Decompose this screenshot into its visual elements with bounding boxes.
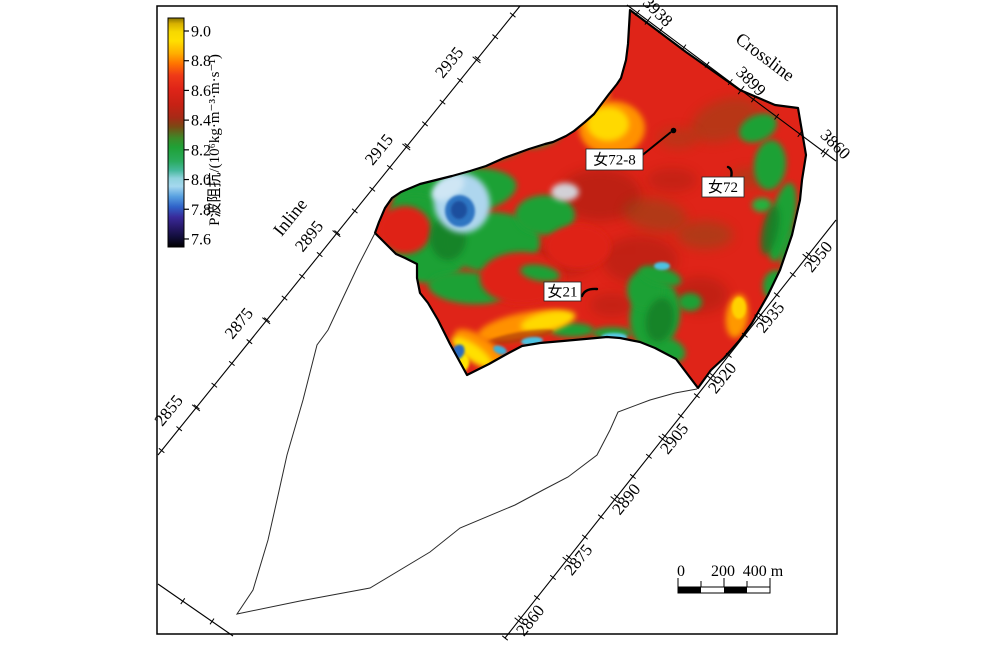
scale-bar-black-segment bbox=[724, 587, 747, 593]
impedance-blob bbox=[647, 168, 697, 192]
axis-tick bbox=[502, 636, 507, 640]
scale-bar-label: 200 bbox=[711, 563, 735, 580]
colorbar-tick-label: 9.0 bbox=[191, 24, 211, 41]
corner-axis bbox=[158, 584, 233, 636]
inline_left-tick-label: 2935 bbox=[431, 43, 467, 81]
well-label: 女72-8 bbox=[593, 151, 636, 169]
axis-tick bbox=[646, 454, 651, 458]
inline_right-tick-label: 2875 bbox=[560, 541, 596, 579]
impedance-blob bbox=[546, 225, 610, 269]
axis-tick bbox=[181, 598, 185, 604]
impedance-blob bbox=[551, 183, 579, 201]
inline_right-tick-label: 2905 bbox=[656, 419, 692, 457]
impedance-map-figure: 393838993860Crossline2855287528952915293… bbox=[0, 0, 1000, 646]
impedance-blob bbox=[451, 201, 467, 219]
axis-tick bbox=[550, 575, 555, 579]
axis-tick bbox=[210, 619, 214, 625]
crossline-tick-label: 3860 bbox=[817, 126, 854, 163]
impedance-blob bbox=[789, 379, 803, 391]
corner-axis-line bbox=[158, 584, 233, 636]
axis-tick bbox=[821, 149, 825, 155]
axis-tick bbox=[582, 535, 587, 539]
axis-tick bbox=[192, 405, 200, 411]
axis-tick bbox=[694, 394, 699, 398]
axis-tick bbox=[630, 474, 635, 478]
colorbar-gradient-bar bbox=[168, 18, 184, 247]
inline_left-tick-label: 2855 bbox=[151, 391, 187, 429]
scale-bar-label: 400 m bbox=[743, 563, 784, 580]
scale-bar: 0200400 m bbox=[677, 563, 784, 593]
impedance-blob bbox=[590, 293, 634, 317]
impedance-blob bbox=[654, 262, 670, 270]
axis-tick bbox=[333, 231, 341, 237]
axis-tick bbox=[678, 414, 683, 418]
impedance-blob bbox=[744, 341, 776, 359]
impedance-blob bbox=[678, 293, 702, 311]
colorbar: 9.08.88.68.48.28.07.87.6P波阻抗/(10⁶kg·m⁻³·… bbox=[168, 18, 223, 248]
inline_right-tick-label: 2950 bbox=[800, 238, 836, 276]
impedance-blob bbox=[379, 206, 431, 254]
scale-bar-black-segment bbox=[678, 587, 701, 593]
axis-tick bbox=[598, 515, 603, 519]
figure-page: 393838993860Crossline2855287528952915293… bbox=[0, 0, 1000, 646]
impedance-blob bbox=[587, 107, 629, 141]
well-label: 女72 bbox=[708, 178, 738, 196]
axis-tick bbox=[790, 272, 795, 276]
impedance-blob bbox=[732, 297, 746, 319]
inline_left-tick-label: 2875 bbox=[221, 304, 257, 342]
impedance-blob bbox=[677, 221, 733, 249]
well-label: 女21 bbox=[547, 283, 577, 301]
axis-tick bbox=[774, 293, 779, 297]
colorbar-unit-label: P波阻抗/(10⁶kg·m⁻³·m·s⁻¹) bbox=[206, 54, 223, 226]
axis-tick bbox=[262, 318, 270, 324]
impedance-blob bbox=[752, 198, 772, 212]
axis-tick bbox=[534, 595, 539, 599]
inline_right-tick-label: 2890 bbox=[608, 480, 644, 518]
scale-bar-label: 0 bbox=[677, 563, 685, 580]
well-dot bbox=[671, 128, 677, 134]
inline_left-tick-label: 2915 bbox=[361, 130, 397, 168]
colorbar-tick-label: 7.6 bbox=[191, 231, 211, 248]
